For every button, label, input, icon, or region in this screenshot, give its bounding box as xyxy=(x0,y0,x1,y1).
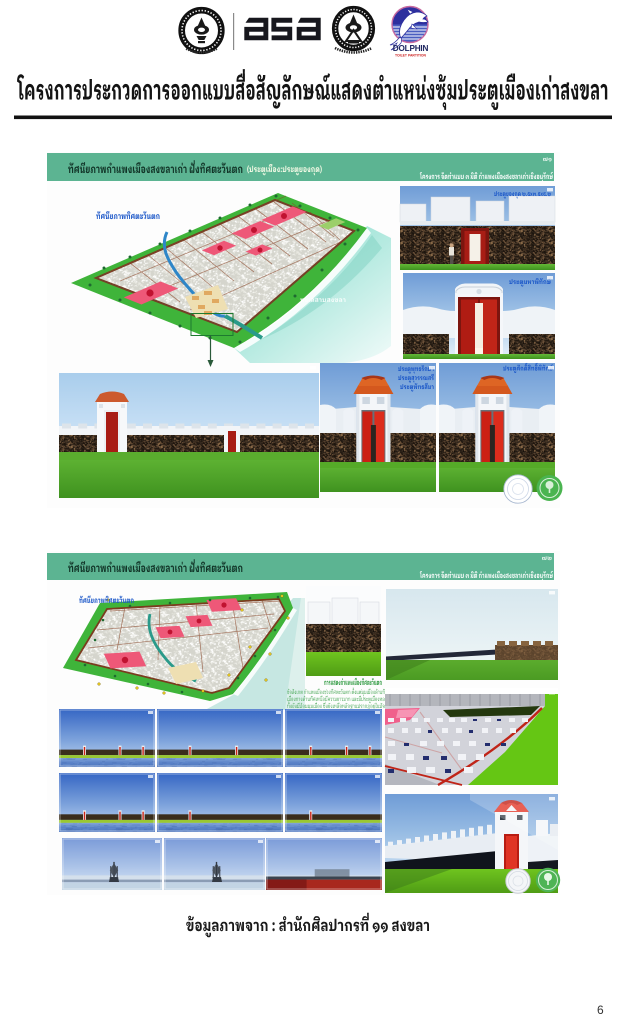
svg-text:TOILET PARTITION: TOILET PARTITION xyxy=(395,54,427,58)
svg-text:DOLPHIN: DOLPHIN xyxy=(393,44,429,53)
svg-text:6: 6 xyxy=(597,1003,604,1017)
